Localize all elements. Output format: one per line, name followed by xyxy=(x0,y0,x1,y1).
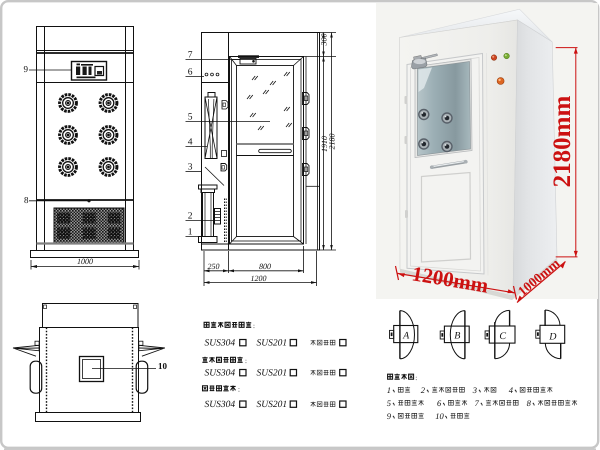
svg-text:1200: 1200 xyxy=(251,274,267,283)
svg-text:SUS201: SUS201 xyxy=(257,369,288,379)
svg-text:9: 9 xyxy=(24,64,29,74)
svg-text:A: A xyxy=(402,331,410,342)
svg-text:10: 10 xyxy=(435,411,444,421)
svg-text:300: 300 xyxy=(320,34,329,47)
svg-text:SUS304: SUS304 xyxy=(205,400,236,410)
svg-text:3: 3 xyxy=(472,385,477,395)
svg-text:250: 250 xyxy=(208,262,220,271)
svg-text::: : xyxy=(415,374,417,382)
svg-text:B: B xyxy=(454,331,460,342)
svg-text:1000: 1000 xyxy=(77,257,93,266)
svg-text:SUS201: SUS201 xyxy=(257,400,288,410)
svg-text::: : xyxy=(238,386,240,394)
svg-text:10: 10 xyxy=(158,361,168,371)
svg-text:2180: 2180 xyxy=(327,134,336,150)
svg-text::: : xyxy=(245,357,247,365)
svg-text:SUS304: SUS304 xyxy=(205,339,236,349)
svg-text:2: 2 xyxy=(421,385,426,395)
svg-text:800: 800 xyxy=(259,262,271,271)
svg-text:8: 8 xyxy=(24,195,29,205)
svg-text:C: C xyxy=(499,331,506,342)
svg-text:5: 5 xyxy=(387,398,391,408)
svg-text::: : xyxy=(253,322,255,330)
svg-text:D: D xyxy=(548,331,557,342)
svg-text:9: 9 xyxy=(387,411,392,421)
svg-text:4: 4 xyxy=(509,385,514,395)
svg-text:SUS201: SUS201 xyxy=(257,339,288,349)
svg-text:8: 8 xyxy=(527,398,532,408)
svg-text:2180mm: 2180mm xyxy=(549,96,576,188)
svg-text:7: 7 xyxy=(475,398,480,408)
svg-text:1: 1 xyxy=(387,385,391,395)
svg-text:SUS304: SUS304 xyxy=(205,369,236,379)
